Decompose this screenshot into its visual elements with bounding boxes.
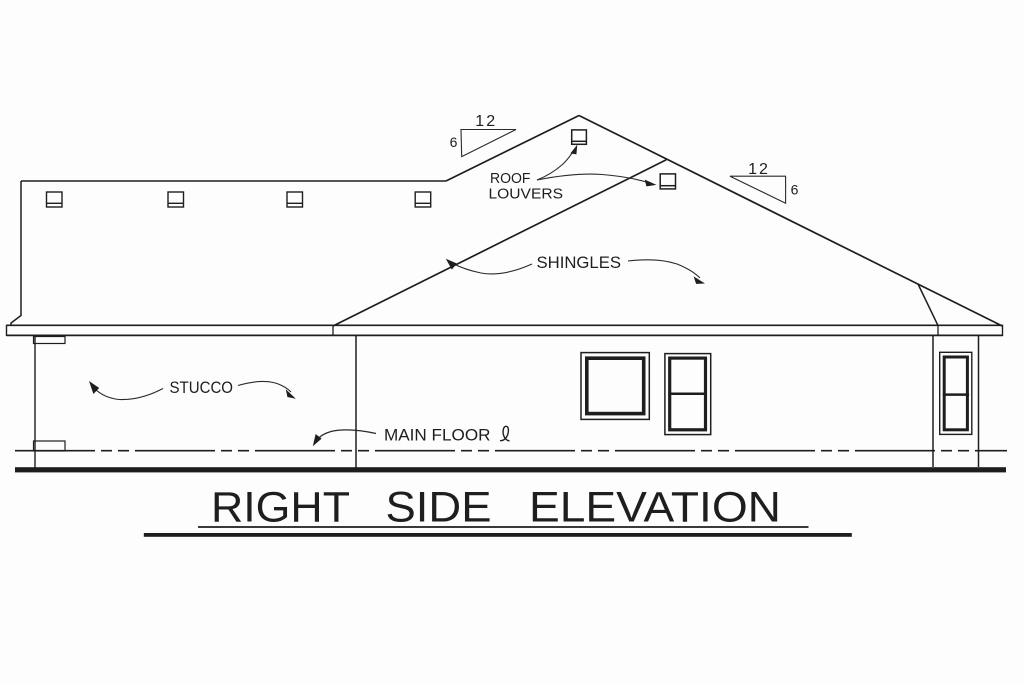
- svg-text:LOUVERS: LOUVERS: [489, 187, 564, 203]
- svg-text:SIDE: SIDE: [386, 485, 492, 532]
- svg-text:12: 12: [748, 161, 770, 178]
- svg-text:MAIN FLOOR: MAIN FLOOR: [384, 425, 491, 444]
- svg-text:6: 6: [450, 134, 458, 150]
- svg-text:6: 6: [791, 182, 799, 198]
- svg-text:ROOF: ROOF: [490, 171, 531, 187]
- svg-text:12: 12: [475, 113, 497, 130]
- svg-text:SHINGLES: SHINGLES: [537, 253, 622, 272]
- svg-text:STUCCO: STUCCO: [170, 378, 234, 397]
- svg-text:ELEVATION: ELEVATION: [529, 485, 781, 532]
- svg-text:RIGHT: RIGHT: [211, 485, 350, 532]
